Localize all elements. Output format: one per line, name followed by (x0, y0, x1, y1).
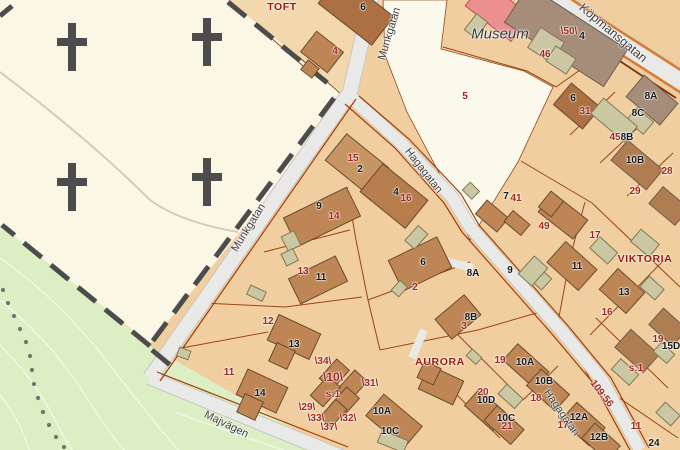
map-viewport[interactable]: Munkgatan Munkgatan Hagagatan Hagagatan … (0, 0, 680, 450)
driveway (412, 330, 424, 358)
map-canvas (0, 0, 680, 450)
